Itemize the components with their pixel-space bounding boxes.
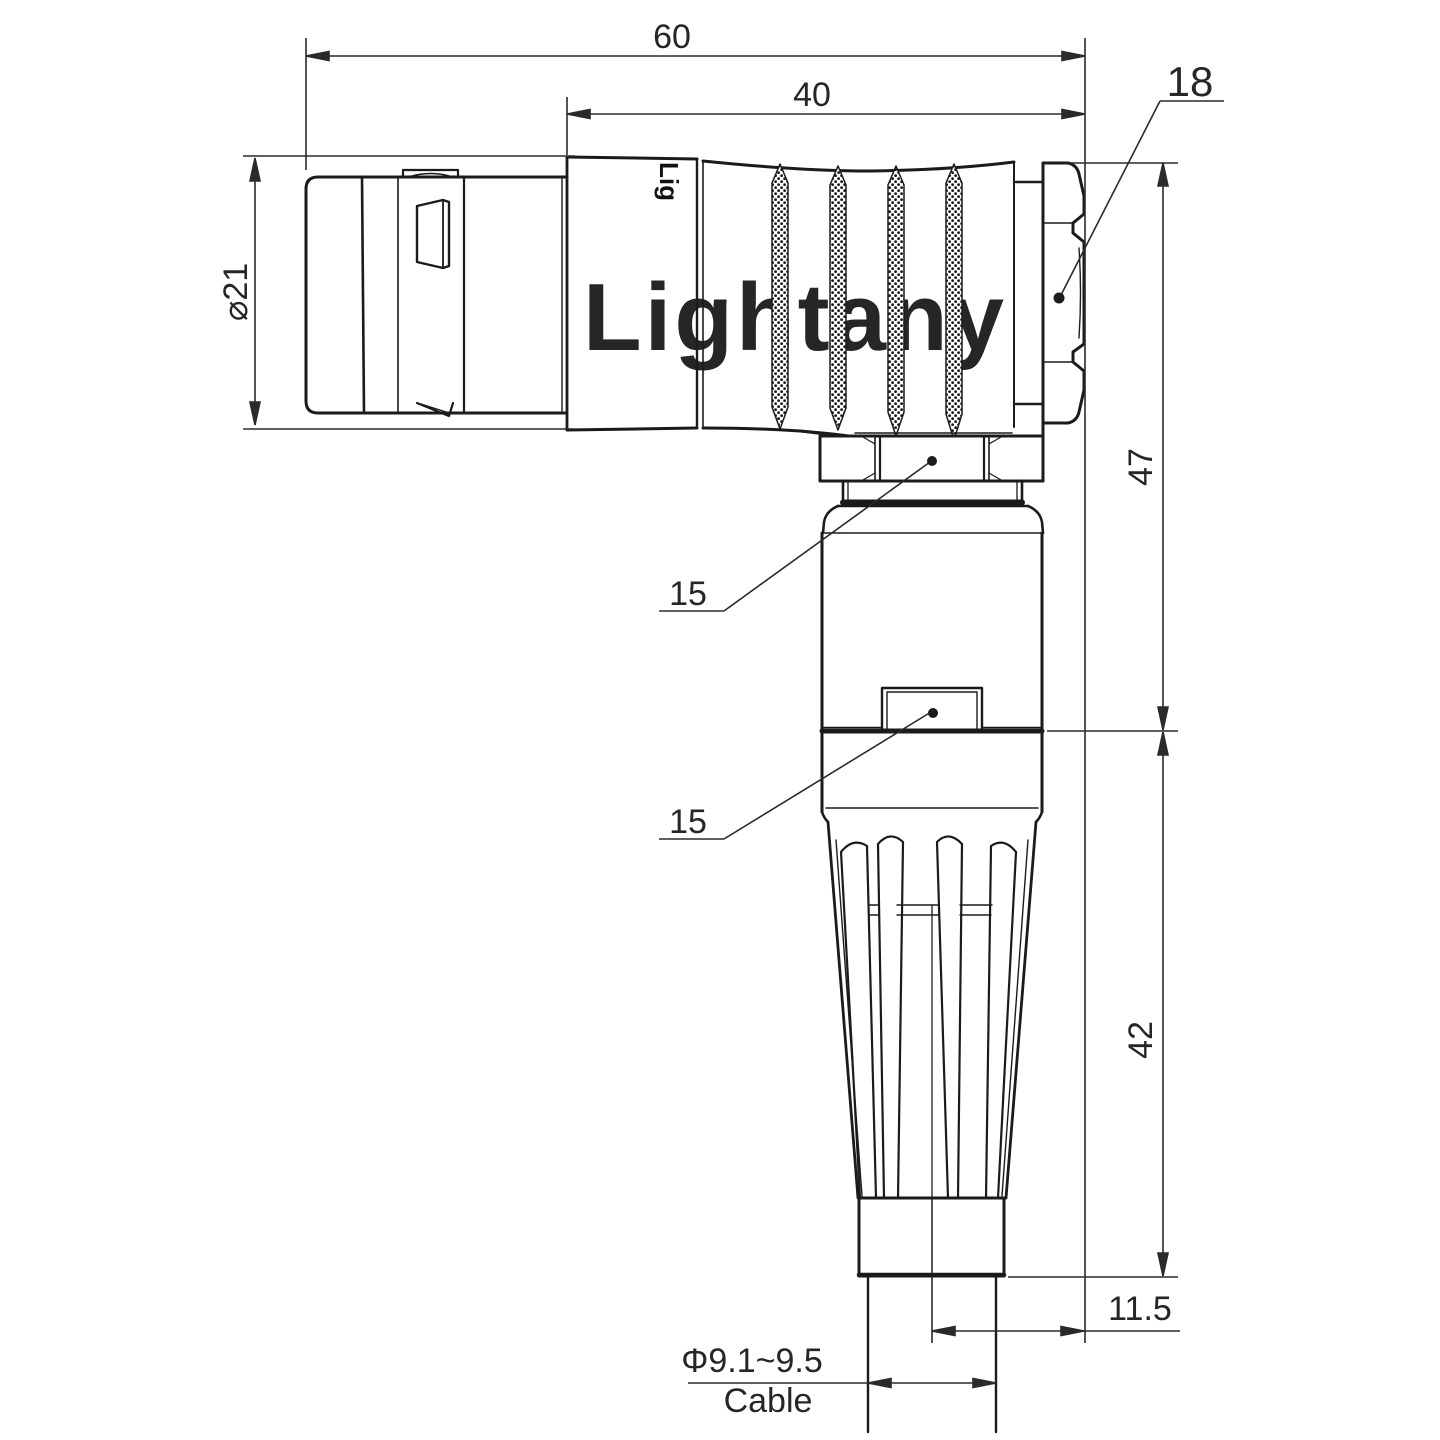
leader-dot: [928, 708, 938, 718]
dim-text-nut-lower: 15: [669, 803, 707, 841]
leader-dot: [927, 456, 937, 466]
dim-text-height-lower: 42: [1122, 1021, 1160, 1059]
body-marking-text: Lig: [654, 162, 684, 201]
connector-drawing: Lightany: [0, 0, 1440, 1440]
watermark-text: Lightany: [583, 264, 1007, 371]
knurl-band: [772, 164, 788, 429]
background: [0, 0, 1440, 1440]
knurl-band: [888, 166, 904, 436]
technical-drawing-page: Lightany: [0, 0, 1440, 1440]
dim-text-nut-upper: 15: [669, 575, 707, 613]
dim-text-offset: 11.5: [1108, 1290, 1172, 1328]
knurl-band: [830, 166, 846, 430]
leader-dot: [1054, 293, 1065, 304]
dim-text-cable-dia: Φ9.1~9.5: [681, 1342, 823, 1380]
dim-text-front-length: 40: [793, 76, 831, 114]
dim-text-height-upper: 47: [1122, 448, 1160, 486]
dim-text-overall-length: 60: [653, 18, 691, 56]
dim-text-barrel-dia: ⌀21: [217, 263, 255, 321]
dim-text-hex-size: 18: [1167, 58, 1214, 105]
knurl-band: [946, 164, 962, 440]
cable-gland: [859, 1198, 1004, 1276]
dim-text-cable-label: Cable: [724, 1382, 813, 1420]
